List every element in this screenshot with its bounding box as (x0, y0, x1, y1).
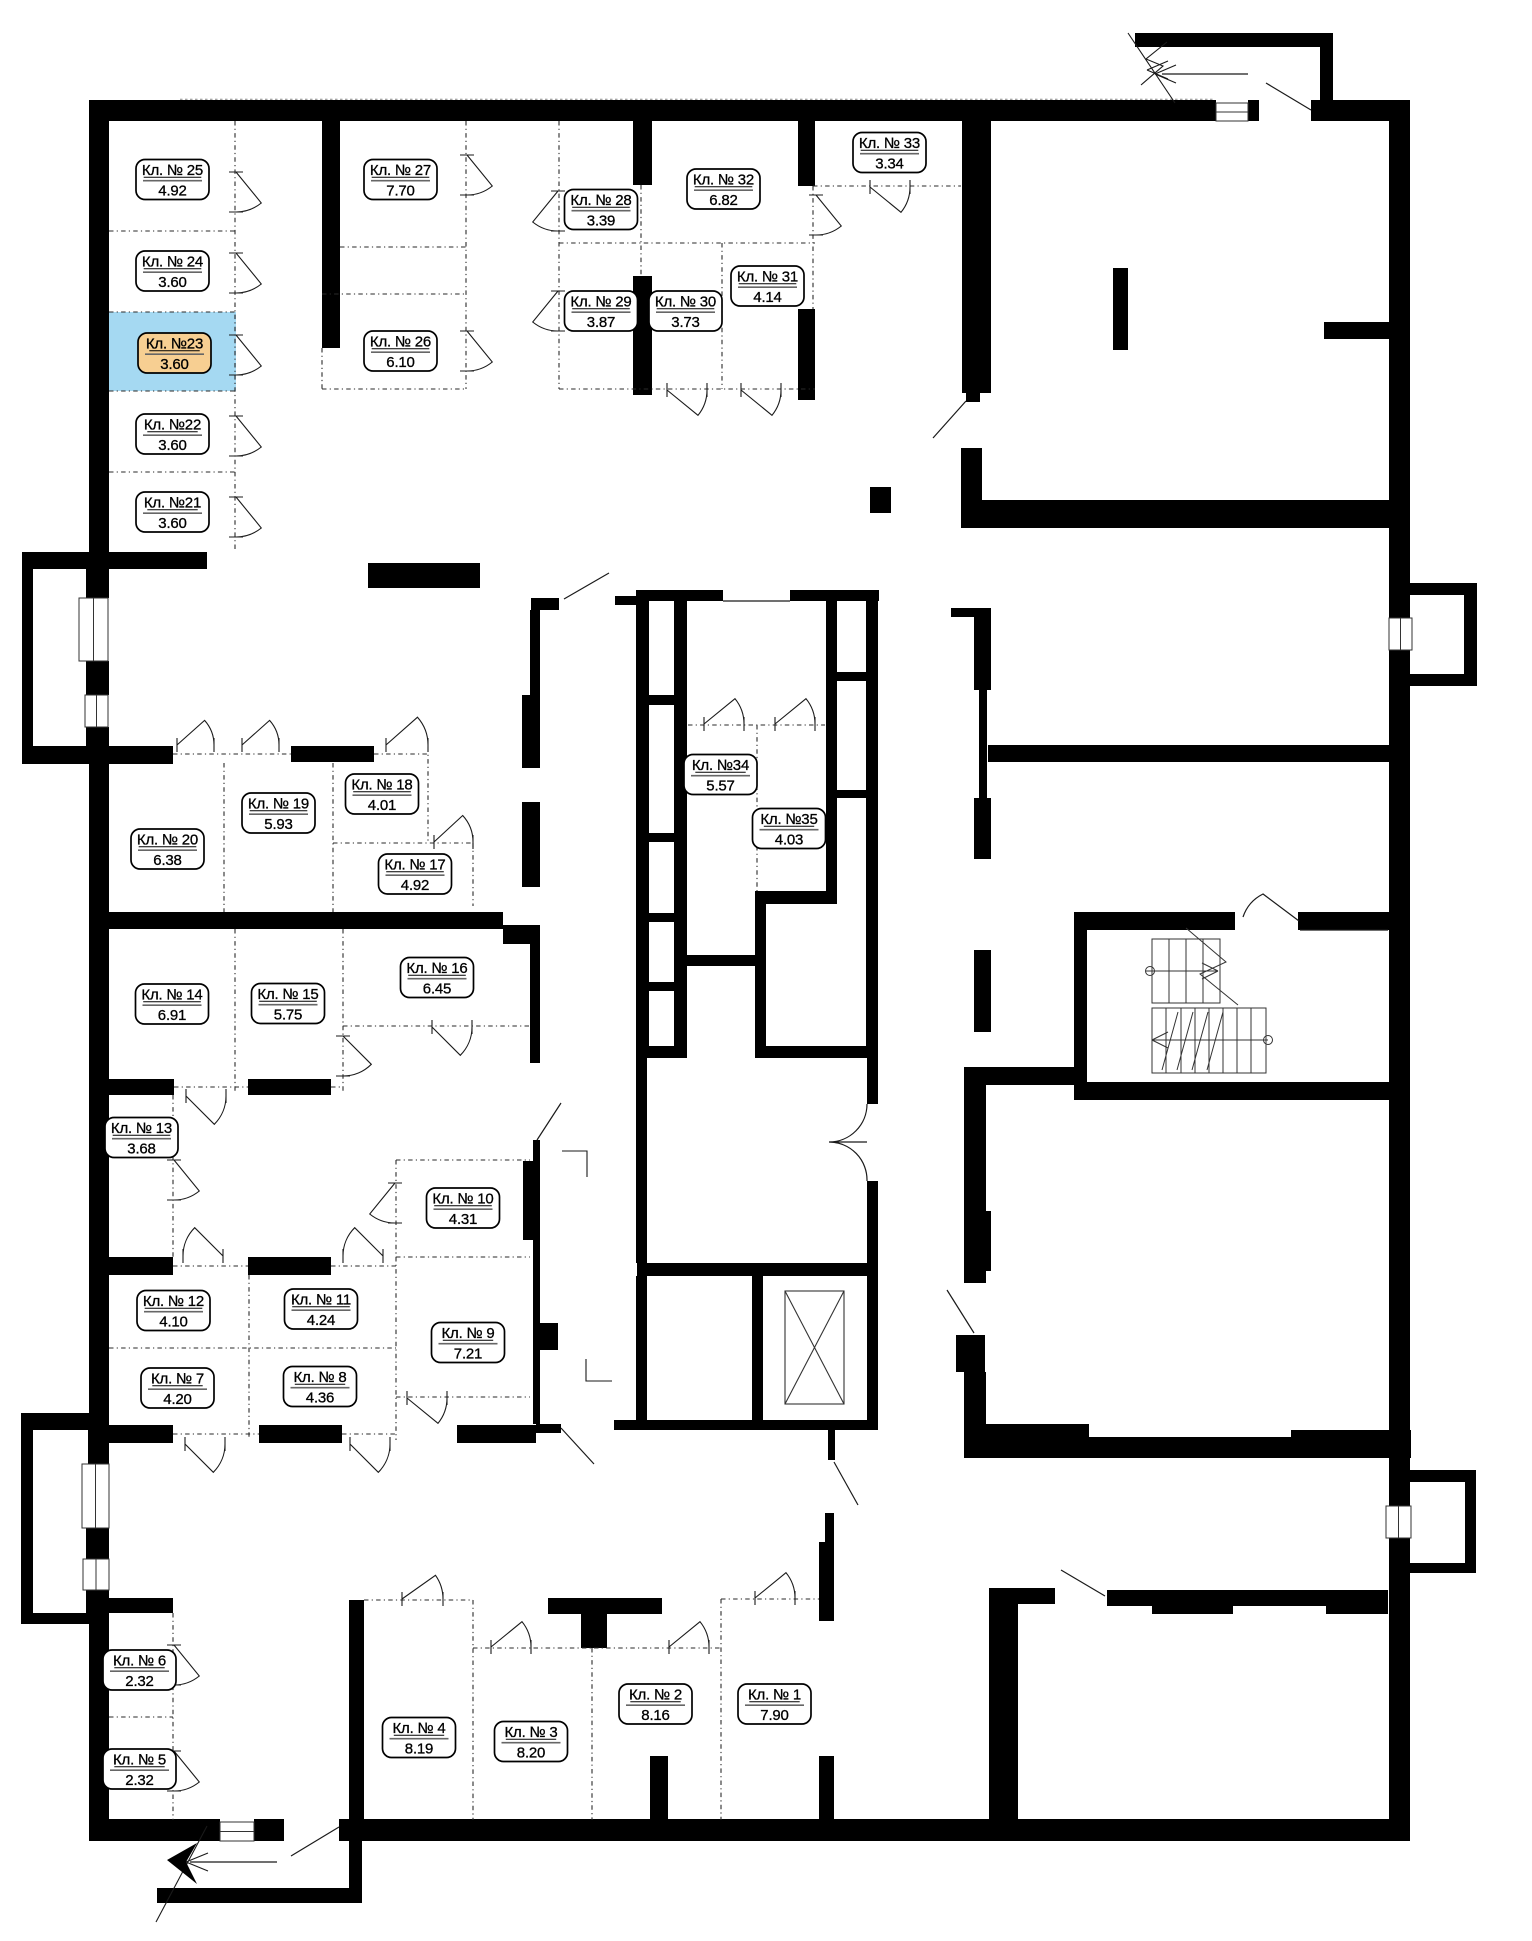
svg-text:3.60: 3.60 (158, 515, 186, 532)
svg-text:Кл. № 18: Кл. № 18 (351, 777, 412, 794)
svg-text:Кл. № 14: Кл. № 14 (141, 987, 202, 1004)
svg-text:Кл. № 33: Кл. № 33 (859, 135, 920, 152)
svg-text:3.60: 3.60 (158, 274, 186, 291)
svg-text:Кл. № 1: Кл. № 1 (748, 1687, 801, 1704)
svg-text:5.75: 5.75 (274, 1007, 302, 1024)
svg-text:Кл. № 13: Кл. № 13 (111, 1120, 172, 1137)
svg-text:3.34: 3.34 (875, 156, 903, 173)
svg-text:Кл. № 15: Кл. № 15 (257, 986, 318, 1003)
svg-text:6.91: 6.91 (158, 1007, 186, 1024)
svg-text:Кл. № 3: Кл. № 3 (504, 1724, 557, 1741)
svg-text:Кл. № 8: Кл. № 8 (293, 1369, 346, 1386)
svg-text:Кл. №35: Кл. №35 (760, 811, 817, 828)
svg-text:4.03: 4.03 (775, 832, 803, 849)
svg-text:Кл. № 6: Кл. № 6 (113, 1653, 166, 1670)
svg-text:Кл. № 25: Кл. № 25 (142, 162, 203, 179)
svg-text:Кл. № 27: Кл. № 27 (370, 162, 431, 179)
svg-text:7.21: 7.21 (454, 1346, 482, 1363)
svg-text:Кл. №34: Кл. №34 (692, 757, 749, 774)
svg-text:Кл. №21: Кл. №21 (144, 495, 201, 512)
svg-text:8.19: 8.19 (405, 1741, 433, 1758)
svg-text:Кл. № 9: Кл. № 9 (441, 1325, 494, 1342)
svg-text:Кл. № 30: Кл. № 30 (655, 294, 716, 311)
svg-text:8.20: 8.20 (517, 1745, 545, 1762)
svg-text:Кл. № 2: Кл. № 2 (629, 1687, 682, 1704)
svg-text:3.60: 3.60 (158, 437, 186, 454)
svg-text:7.90: 7.90 (760, 1707, 788, 1724)
svg-text:Кл. № 29: Кл. № 29 (570, 294, 631, 311)
svg-text:4.10: 4.10 (159, 1314, 187, 1331)
svg-text:8.16: 8.16 (641, 1707, 669, 1724)
svg-text:4.31: 4.31 (449, 1211, 477, 1228)
svg-text:4.36: 4.36 (306, 1390, 334, 1407)
svg-text:6.10: 6.10 (386, 354, 414, 371)
svg-text:4.14: 4.14 (753, 289, 781, 306)
svg-text:Кл. №23: Кл. №23 (146, 336, 203, 353)
svg-text:Кл. № 19: Кл. № 19 (248, 796, 309, 813)
svg-text:Кл. № 10: Кл. № 10 (432, 1191, 493, 1208)
svg-text:3.87: 3.87 (587, 314, 615, 331)
svg-text:Кл. № 12: Кл. № 12 (143, 1293, 204, 1310)
svg-text:Кл. № 7: Кл. № 7 (151, 1371, 204, 1388)
svg-text:Кл. № 26: Кл. № 26 (370, 334, 431, 351)
svg-text:4.92: 4.92 (158, 183, 186, 200)
svg-text:3.68: 3.68 (127, 1141, 155, 1158)
svg-text:Кл. № 11: Кл. № 11 (291, 1292, 351, 1309)
svg-text:7.70: 7.70 (386, 183, 414, 200)
svg-text:3.39: 3.39 (587, 213, 615, 230)
svg-text:4.24: 4.24 (307, 1312, 335, 1329)
svg-text:Кл. № 5: Кл. № 5 (113, 1752, 166, 1769)
svg-text:6.82: 6.82 (709, 192, 737, 209)
svg-text:2.32: 2.32 (125, 1673, 153, 1690)
svg-text:Кл. №22: Кл. №22 (144, 417, 201, 434)
svg-text:Кл. № 32: Кл. № 32 (693, 172, 754, 189)
svg-text:4.01: 4.01 (368, 797, 396, 814)
svg-text:4.92: 4.92 (401, 877, 429, 894)
svg-text:3.73: 3.73 (671, 314, 699, 331)
svg-text:2.32: 2.32 (125, 1772, 153, 1789)
svg-text:Кл. № 31: Кл. № 31 (737, 269, 798, 286)
svg-text:Кл. № 24: Кл. № 24 (142, 254, 203, 271)
svg-text:4.20: 4.20 (163, 1391, 191, 1408)
svg-text:Кл. № 20: Кл. № 20 (137, 832, 198, 849)
svg-text:3.60: 3.60 (160, 356, 188, 373)
svg-text:Кл. № 17: Кл. № 17 (384, 857, 445, 874)
svg-text:6.45: 6.45 (423, 981, 451, 998)
svg-text:5.57: 5.57 (706, 778, 734, 795)
svg-text:Кл. № 16: Кл. № 16 (406, 960, 467, 977)
svg-text:Кл. № 4: Кл. № 4 (392, 1720, 445, 1737)
svg-text:Кл. № 28: Кл. № 28 (570, 192, 631, 209)
svg-text:6.38: 6.38 (153, 852, 181, 869)
svg-text:5.93: 5.93 (264, 816, 292, 833)
